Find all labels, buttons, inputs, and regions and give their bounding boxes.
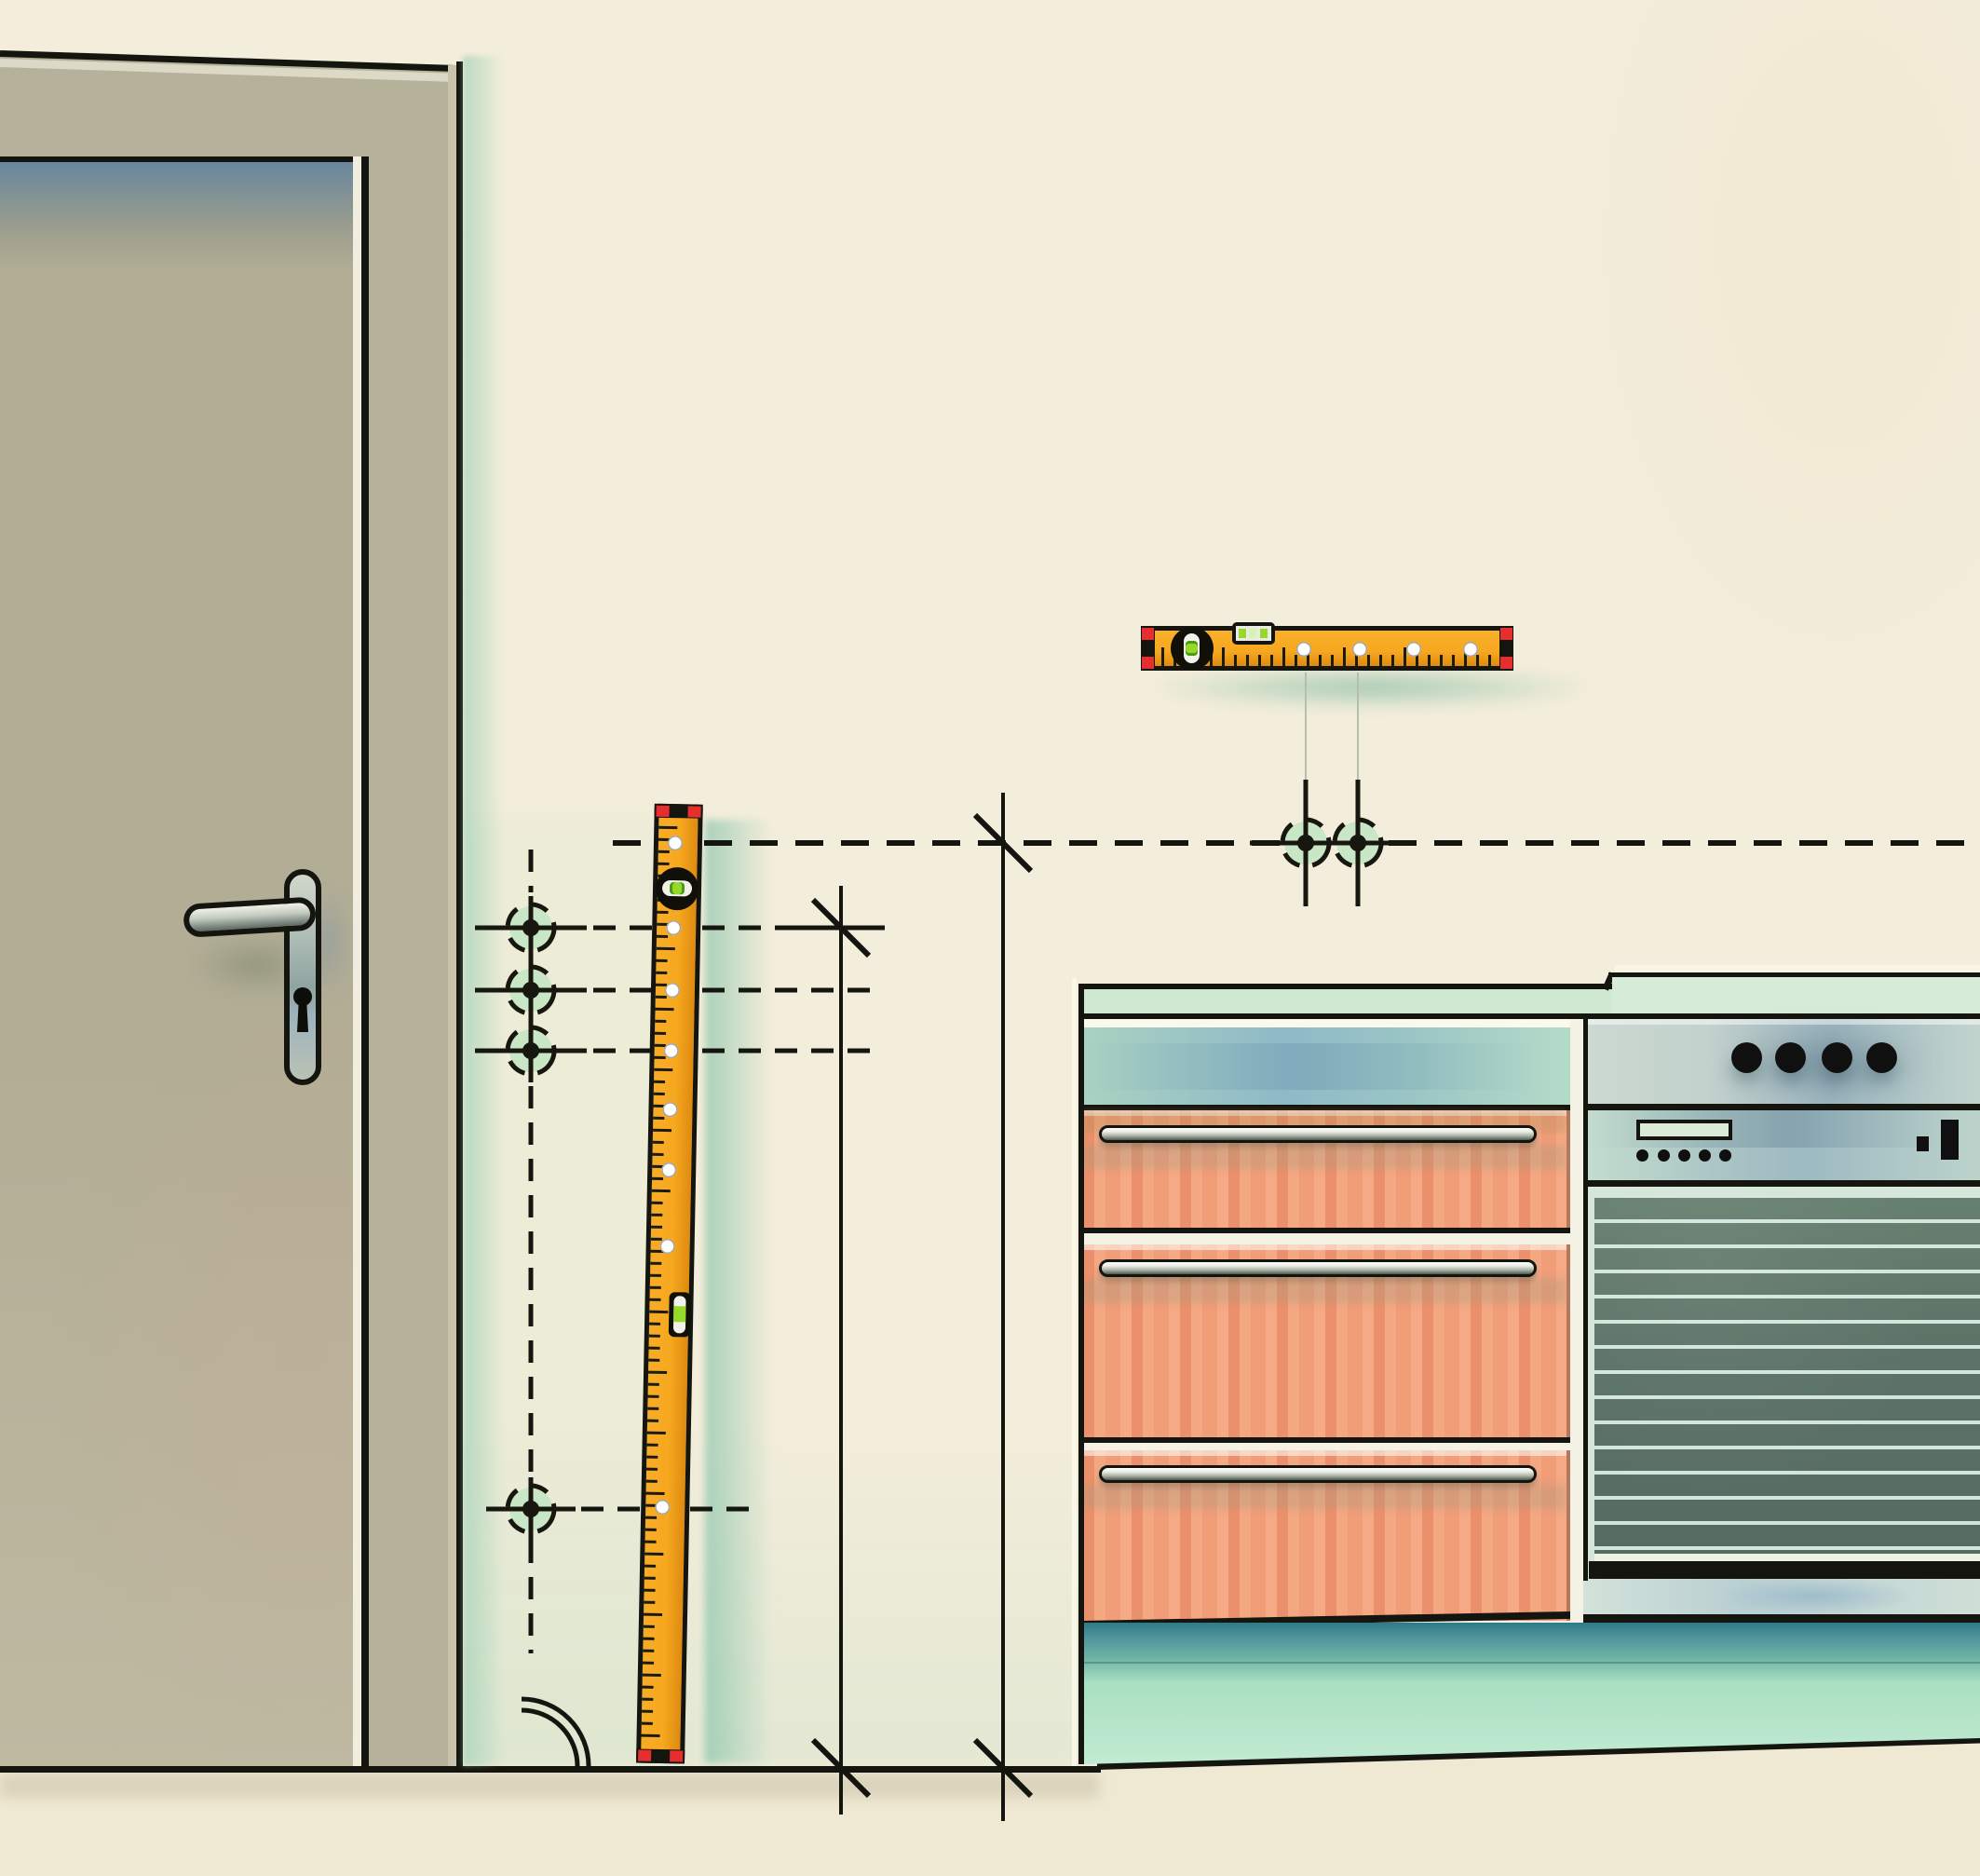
level-v-ruler-tick [657, 947, 675, 950]
level-h-ruler-tick [1428, 655, 1431, 666]
drawer-handle [1099, 1125, 1537, 1143]
cabinet-oven-divider [1570, 1019, 1583, 1623]
level-h-ruler-tick [1440, 655, 1443, 666]
drawer-handle-shade [1083, 1145, 1566, 1169]
level-v-ruler-tick [647, 1444, 658, 1447]
level-v-ruler-tick [652, 1177, 663, 1180]
level-h-sight-hole [1406, 642, 1421, 657]
level-h-ruler-tick [1282, 647, 1285, 666]
level-v-ruler-tick [653, 1153, 664, 1156]
level-v-ruler-tick [647, 1432, 666, 1434]
oven-panel-indicator [1917, 1136, 1929, 1151]
drawer-front-top-highlight [1083, 1244, 1566, 1250]
level-v-ruler-tick [643, 1662, 654, 1665]
level-v-ruler-tick [644, 1625, 655, 1628]
level-v-ruler-tick [644, 1577, 656, 1580]
oven-bottom-line [1583, 1614, 1980, 1623]
level-v-ruler-tick [654, 1068, 672, 1071]
oven-left-outline [1583, 1013, 1588, 1581]
oven-panel-button [1719, 1149, 1731, 1162]
oven-knob [1866, 1042, 1897, 1073]
level-h-ruler-tick [1234, 655, 1237, 666]
oven-knob [1822, 1042, 1852, 1073]
level-h-cap-left-red-top [1142, 628, 1154, 640]
level-v-ruler-tick [658, 863, 670, 865]
level-v-cap-top-red-right [688, 806, 701, 817]
level-v-ruler-tick [650, 1274, 661, 1277]
level-h-ruler-tick [1452, 655, 1455, 666]
drawer-front [1083, 1110, 1570, 1228]
level-v-ruler-tick [644, 1613, 662, 1616]
drawer-front [1083, 1450, 1570, 1621]
illustration-kitchen-install-diagram [0, 0, 1980, 1876]
plinth-inner-line [1083, 1662, 1980, 1664]
level-h-sight-hole [1296, 642, 1311, 657]
level-v-ruler-tick [649, 1311, 668, 1313]
level-v-ruler-tick [650, 1286, 661, 1289]
level-h-cap-right-red-bottom [1500, 657, 1512, 669]
drawer-handle-shade [1083, 1485, 1566, 1509]
level-v-ruler-tick [651, 1238, 662, 1241]
oven-door-latch [1941, 1120, 1959, 1160]
oven-panel-button [1636, 1149, 1648, 1162]
level-v-ruler-tick [645, 1541, 657, 1543]
level-v-bar-vial-bubble [673, 1306, 685, 1322]
countertop-highlight [1083, 1019, 1583, 1027]
level-v-ruler-tick [645, 1529, 657, 1531]
level-v-cap-bottom-red-right [670, 1750, 683, 1761]
level-h-ruler-tick [1331, 655, 1334, 666]
horizontal-spirit-level [1141, 626, 1513, 671]
level-v-ruler-tick [648, 1359, 659, 1362]
level-h-cap-left-red-bottom [1142, 657, 1154, 669]
level-h-ruler-tick [1161, 647, 1164, 666]
level-v-ruler-tick [655, 1056, 666, 1059]
level-v-ruler-tick [649, 1335, 660, 1338]
level-h-top-window-vial [1232, 622, 1275, 645]
level-v-ruler-tick [645, 1516, 657, 1519]
level-v-ruler-tick [648, 1383, 659, 1386]
drawer-front-top-highlight [1083, 1450, 1566, 1456]
level-h-ruler-tick [1488, 655, 1491, 666]
level-h-ruler-tick [1246, 655, 1249, 666]
drawer-gap-line [1083, 1437, 1574, 1443]
level-v-ruler-tick [653, 1129, 671, 1132]
drawer-front [1083, 1244, 1570, 1437]
level-v-ruler-tick [658, 826, 677, 829]
level-v-ruler-tick [651, 1226, 662, 1229]
level-v-ruler-tick [657, 959, 668, 962]
cooktop-band-bottom-line [1588, 1104, 1980, 1110]
level-v-ruler-tick [650, 1262, 661, 1265]
oven-top-back-highlight [1615, 965, 1980, 972]
oven-door-glass-sheen [1594, 1198, 1980, 1554]
level-v-ruler-tick [643, 1686, 654, 1689]
level-v-cap-bottom-red-left [638, 1750, 651, 1761]
drawer-handle-shade [1083, 1279, 1566, 1303]
level-h-cap-right-red-top [1500, 628, 1512, 640]
level-h-ruler-tick [1391, 655, 1394, 666]
level-h-ruler-tick [1307, 655, 1309, 666]
level-v-ruler-tick [653, 1117, 664, 1120]
drill-hole-mark [1302, 780, 1414, 906]
level-h-sight-hole [1463, 642, 1478, 657]
level-v-ruler-tick [644, 1565, 656, 1568]
level-v-ruler-tick [647, 1420, 658, 1422]
oven-knob [1731, 1042, 1762, 1073]
countertop-surface [1083, 989, 1614, 1015]
level-v-ruler-tick [649, 1323, 660, 1325]
oven-panel-button [1699, 1149, 1711, 1162]
level-h-ruler-tick [1270, 655, 1273, 666]
oven-panel-bottom-line [1588, 1180, 1980, 1187]
level-v-ruler-tick [643, 1650, 654, 1652]
drill-mark-center-dot [522, 1501, 539, 1517]
drawer-handle [1099, 1465, 1537, 1483]
level-h-ruler-tick [1295, 655, 1297, 666]
level-v-ruler-tick [643, 1674, 661, 1677]
level-h-round-vial-bubble [1186, 641, 1198, 656]
level-v-ruler-tick [656, 1008, 674, 1011]
level-v-bar-vial [669, 1292, 691, 1337]
level-v-ruler-tick [648, 1371, 667, 1374]
drill-hole-mark [475, 1019, 587, 1082]
oven-base-trim-blue [1723, 1579, 1909, 1614]
level-v-ruler-tick [644, 1553, 663, 1556]
oven-door-bottom-band [1589, 1561, 1980, 1579]
level-v-ruler-tick [658, 911, 669, 914]
drill-mark-center-dot [522, 982, 539, 999]
level-h-ruler-tick [1319, 655, 1322, 666]
level-h-ruler-tick [1258, 655, 1261, 666]
oven-panel-button [1658, 1149, 1670, 1162]
level-h-window-green-1 [1239, 629, 1246, 638]
level-h-window-green-2 [1260, 629, 1268, 638]
level-v-ruler-tick [642, 1722, 653, 1725]
drill-hole-mark [486, 1477, 576, 1541]
level-v-ruler-tick [652, 1202, 663, 1204]
level-v-ruler-tick [655, 1020, 666, 1023]
level-h-ruler-tick [1379, 655, 1382, 666]
level-h-sight-hole [1352, 642, 1367, 657]
level-v-ruler-tick [651, 1214, 662, 1217]
level-v-ruler-tick [642, 1698, 653, 1701]
level-h-ruler-tick [1476, 655, 1479, 666]
level-v-ruler-tick [653, 1141, 664, 1144]
level-v-ruler-tick [644, 1638, 655, 1640]
level-v-ruler-tick [642, 1710, 653, 1713]
level-h-ruler-tick [1343, 647, 1346, 666]
level-v-ruler-tick [658, 850, 670, 853]
level-v-ruler-tick [646, 1480, 658, 1483]
level-v-ruler-tick [647, 1407, 658, 1410]
level-h-round-vial [1171, 627, 1214, 670]
level-h-ruler-tick [1222, 647, 1225, 666]
level-v-ruler-tick [650, 1298, 661, 1301]
level-v-ruler-tick [656, 972, 667, 974]
level-v-ruler-tick [644, 1589, 656, 1592]
oven-display-window [1636, 1120, 1732, 1140]
oven-knob [1775, 1042, 1806, 1073]
level-v-ruler-tick [652, 1189, 671, 1192]
drill-hole-mark [475, 896, 587, 959]
drawer-handle [1099, 1259, 1537, 1277]
oven-door-bottom-highlight [1594, 1554, 1980, 1561]
level-v-ruler-tick [646, 1492, 665, 1495]
drill-mark-center-dot [1349, 835, 1366, 851]
level-v-ruler-tick [646, 1468, 658, 1471]
level-h-ruler-tick [1416, 655, 1418, 666]
level-v-ruler-tick [654, 1093, 665, 1095]
level-v-ruler-tick [657, 935, 668, 938]
level-v-ruler-tick [644, 1601, 655, 1604]
level-v-ruler-tick [648, 1395, 659, 1398]
drill-mark-center-dot [522, 919, 539, 936]
cabinet-left-outline [1078, 984, 1084, 1764]
cabinet-left-halo [1072, 978, 1077, 1766]
level-v-cap-top-red-left [657, 806, 670, 817]
drawer-gap-line [1083, 1228, 1574, 1233]
drill-mark-center-dot [522, 1042, 539, 1059]
level-h-ruler-tick [1367, 655, 1370, 666]
drill-hole-mark [475, 958, 587, 1022]
level-v-ruler-tick [646, 1456, 658, 1459]
level-v-round-vial-bubble [670, 882, 685, 894]
countertop-apron-shade [1083, 1043, 1583, 1090]
oven-base-trim [1583, 1579, 1980, 1614]
oven-panel-button [1678, 1149, 1690, 1162]
level-v-ruler-tick [656, 996, 667, 999]
level-v-ruler-tick [649, 1347, 660, 1350]
level-v-ruler-tick [654, 1081, 665, 1083]
level-v-ruler-tick [642, 1734, 660, 1737]
oven-top-surface [1612, 977, 1980, 1013]
level-v-ruler-tick [655, 1032, 666, 1035]
